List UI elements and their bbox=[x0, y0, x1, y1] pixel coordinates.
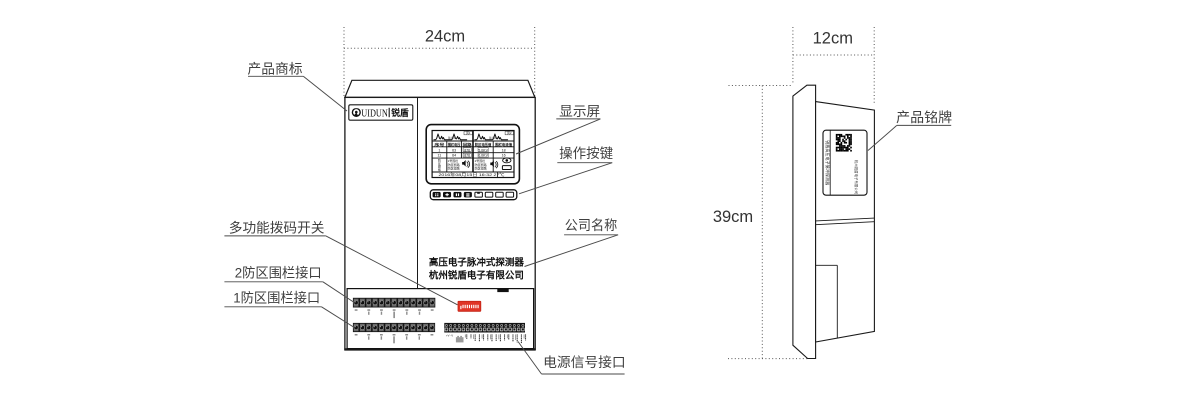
svg-text:-V: -V bbox=[450, 334, 453, 338]
svg-text:电源信号接口: 电源信号接口 bbox=[543, 354, 626, 370]
svg-text:序号: 序号 bbox=[433, 142, 446, 147]
svg-text:高压电子脉冲式探测器: 高压电子脉冲式探测器 bbox=[429, 255, 524, 268]
svg-text:围栏电流值: 围栏电流值 bbox=[495, 142, 513, 147]
svg-text:产品铭牌: 产品铭牌 bbox=[896, 109, 952, 125]
svg-text:风2: 风2 bbox=[507, 131, 512, 135]
svg-text:公司名称: 公司名称 bbox=[565, 218, 618, 233]
svg-text:16: 16 bbox=[502, 154, 506, 158]
svg-text:64: 64 bbox=[452, 154, 456, 158]
svg-text:防区电压值: 防区电压值 bbox=[475, 142, 492, 147]
svg-text:1防区围栏接口: 1防区围栏接口 bbox=[233, 290, 320, 306]
svg-text:操作按键: 操作按键 bbox=[559, 146, 613, 161]
svg-text:39cm: 39cm bbox=[713, 208, 753, 226]
svg-text:1: 1 bbox=[438, 148, 440, 152]
svg-text:杭州锐盾电子有限公司: 杭州锐盾电子有限公司 bbox=[429, 268, 524, 281]
svg-text:显示屏: 显示屏 bbox=[559, 104, 600, 119]
svg-text:12cm: 12cm bbox=[813, 30, 853, 48]
svg-text:杭州锐盾电子有限公司: 杭州锐盾电子有限公司 bbox=[854, 160, 859, 194]
svg-text:产品商标: 产品商标 bbox=[248, 61, 303, 76]
svg-text:+V: +V bbox=[446, 334, 450, 338]
svg-text:多功能拨码开关: 多功能拨码开关 bbox=[229, 219, 325, 235]
svg-text:11: 11 bbox=[438, 154, 442, 158]
svg-text:围栏电压: 围栏电压 bbox=[448, 142, 461, 147]
svg-text:防区短路: 防区短路 bbox=[475, 165, 487, 170]
svg-text:2防区围栏接口: 2防区围栏接口 bbox=[235, 265, 322, 281]
svg-text:脉冲1: 脉冲1 bbox=[448, 136, 455, 140]
svg-text:18: 18 bbox=[502, 148, 506, 152]
svg-text:63: 63 bbox=[452, 148, 456, 152]
svg-text:回路: 回路 bbox=[463, 142, 473, 147]
svg-text:锐盾: 锐盾 bbox=[391, 107, 409, 118]
svg-text:脉冲2: 脉冲2 bbox=[489, 136, 496, 140]
svg-text:24cm: 24cm bbox=[425, 28, 465, 46]
svg-text:风1: 风1 bbox=[466, 131, 471, 135]
svg-text:2016年08月15日 16:32 27℃: 2016年08月15日 16:32 27℃ bbox=[439, 172, 505, 177]
svg-text:防区短路: 防区短路 bbox=[448, 165, 460, 170]
svg-text:锐盾高压电子脉冲探测器: 锐盾高压电子脉冲探测器 bbox=[825, 140, 830, 185]
svg-text:UIDUN: UIDUN bbox=[361, 107, 388, 119]
